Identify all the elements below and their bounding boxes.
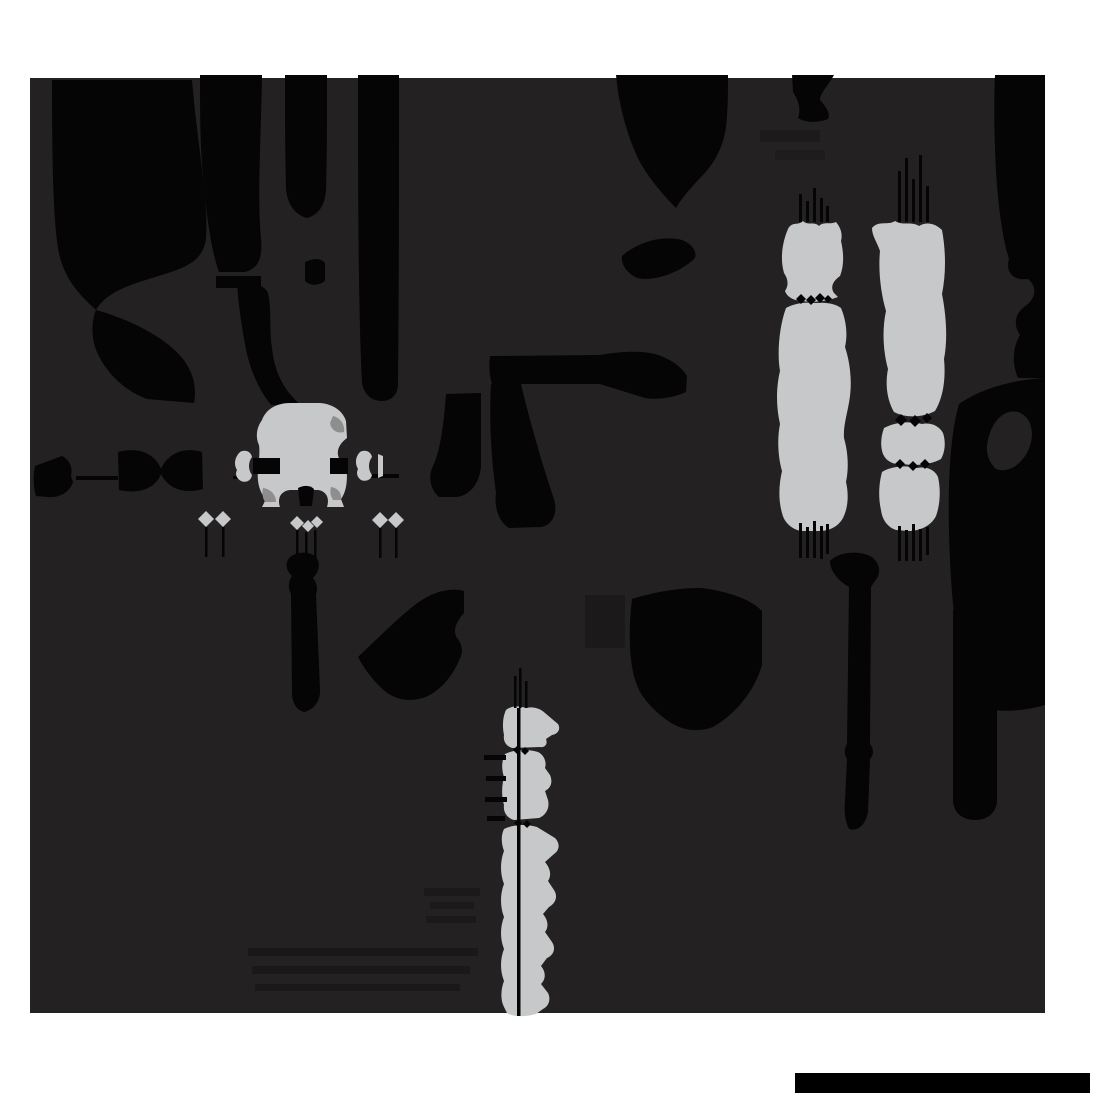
faint-streak: [426, 916, 476, 923]
leader-line: [905, 530, 908, 561]
leader-line: [806, 527, 809, 558]
leader-line: [799, 194, 802, 222]
faint-rect: [585, 595, 625, 648]
leader-line: [519, 668, 522, 708]
leader-line: [898, 526, 901, 561]
pin-hairline: [205, 527, 208, 557]
leader-line: [898, 171, 901, 222]
pin-hairline: [395, 528, 398, 558]
tick-mark: [484, 755, 506, 760]
leader-line: [919, 529, 922, 561]
pin-hairline: [314, 530, 317, 558]
leader-line: [912, 524, 915, 561]
tick-mark: [485, 797, 507, 802]
faint-blob: [760, 130, 820, 142]
leader-line: [799, 523, 802, 558]
bottom-scale-bar: [795, 1073, 1090, 1093]
leader-line: [514, 676, 517, 708]
leader-line: [820, 526, 823, 559]
faint-streak: [430, 902, 474, 909]
leader-line: [926, 527, 929, 555]
pin-hairline: [222, 527, 225, 557]
leader-line: [919, 155, 922, 222]
leader-line: [813, 521, 816, 558]
part-notch: [298, 486, 314, 506]
tick-mark: [486, 776, 506, 781]
hairline: [76, 476, 118, 480]
gray-column-1-lower: [777, 303, 851, 531]
leader-line: [912, 179, 915, 222]
pin-hairline: [379, 528, 382, 558]
right-edge-ribbon-mid: [1014, 335, 1045, 378]
faint-band: [248, 948, 478, 956]
faint-blob: [775, 150, 825, 160]
hairline: [371, 474, 399, 478]
figure-page: [0, 0, 1100, 1100]
right-vertical-bar: [953, 610, 997, 820]
leader-line: [826, 206, 829, 222]
pin-hairline: [296, 530, 299, 560]
gray-column-2-mid: [881, 422, 945, 465]
pin-hairline: [305, 532, 308, 560]
leader-line: [525, 681, 528, 708]
leader-line: [905, 158, 908, 222]
leader-line: [820, 198, 823, 222]
leader-line: [813, 188, 816, 222]
gray-sliver: [378, 454, 383, 478]
tick-mark: [487, 816, 505, 821]
gray-column-2-lower: [879, 466, 940, 531]
top-left-column-3-bridge: [305, 259, 325, 285]
leader-line: [926, 186, 929, 222]
faint-band: [255, 984, 460, 991]
faint-streak: [424, 888, 480, 896]
bottom-column-seg-2: [502, 750, 551, 820]
faint-band: [252, 966, 470, 974]
arrow-bar: [253, 458, 280, 474]
column-center-line: [517, 708, 521, 1016]
arrow-bar: [330, 458, 348, 474]
top-left-column-4: [358, 75, 399, 401]
diagram-canvas: [0, 0, 1100, 1100]
top-left-column-3: [285, 75, 327, 218]
leader-line: [806, 201, 809, 222]
leader-line: [826, 524, 829, 554]
